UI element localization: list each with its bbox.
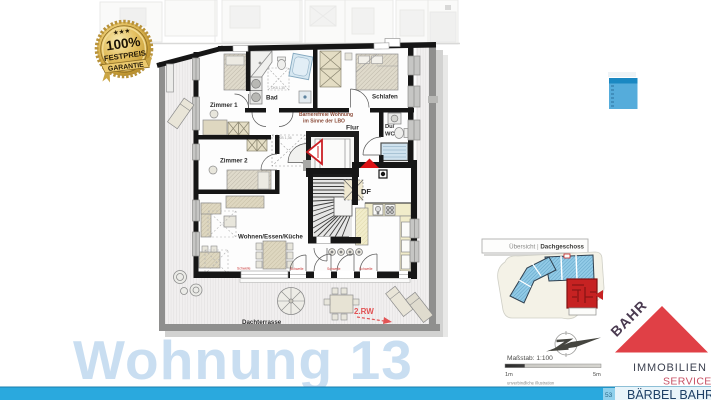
svg-text:Zimmer 2: Zimmer 2 [220,158,248,165]
svg-text:53: 53 [605,392,613,399]
svg-text:Schwelle: Schwelle [327,267,341,271]
svg-text:Zimmer 1: Zimmer 1 [210,102,238,109]
svg-text:IMMOBILIEN: IMMOBILIEN [633,362,707,374]
svg-text:SERVICE: SERVICE [663,376,711,388]
svg-text:1m: 1m [505,372,513,378]
svg-text:Barrierefreie Wohnung: Barrierefreie Wohnung [299,112,353,118]
svg-text:Schwelle: Schwelle [290,267,304,271]
svg-text:Flur: Flur [346,125,359,132]
svg-text:Maßstab: 1:100: Maßstab: 1:100 [507,355,553,362]
svg-text:Wohnen/Essen/Küche: Wohnen/Essen/Küche [238,234,303,241]
svg-text:Wohnung 13: Wohnung 13 [73,329,413,391]
svg-text:WC: WC [385,132,395,138]
svg-text:2.RW: 2.RW [354,307,374,316]
svg-text:DF: DF [361,187,371,196]
svg-text:Bad: Bad [266,95,278,102]
svg-text:im Sinne der LBO: im Sinne der LBO [303,119,345,125]
svg-text:Übersicht | Dachgeschoss: Übersicht | Dachgeschoss [509,244,584,251]
svg-text:BÄRBEL BAHR: BÄRBEL BAHR [627,388,711,400]
svg-text:OKB 1,35: OKB 1,35 [271,86,285,90]
svg-text:5m: 5m [593,372,601,378]
svg-text:Dachterrasse: Dachterrasse [242,319,282,326]
svg-text:Schwelle: Schwelle [237,267,251,271]
svg-text:Schwelle: Schwelle [359,267,373,271]
svg-text:Du/: Du/ [385,124,395,130]
svg-text:unverbindliche Illustration: unverbindliche Illustration [507,381,555,386]
svg-text:Schlafen: Schlafen [372,94,398,101]
